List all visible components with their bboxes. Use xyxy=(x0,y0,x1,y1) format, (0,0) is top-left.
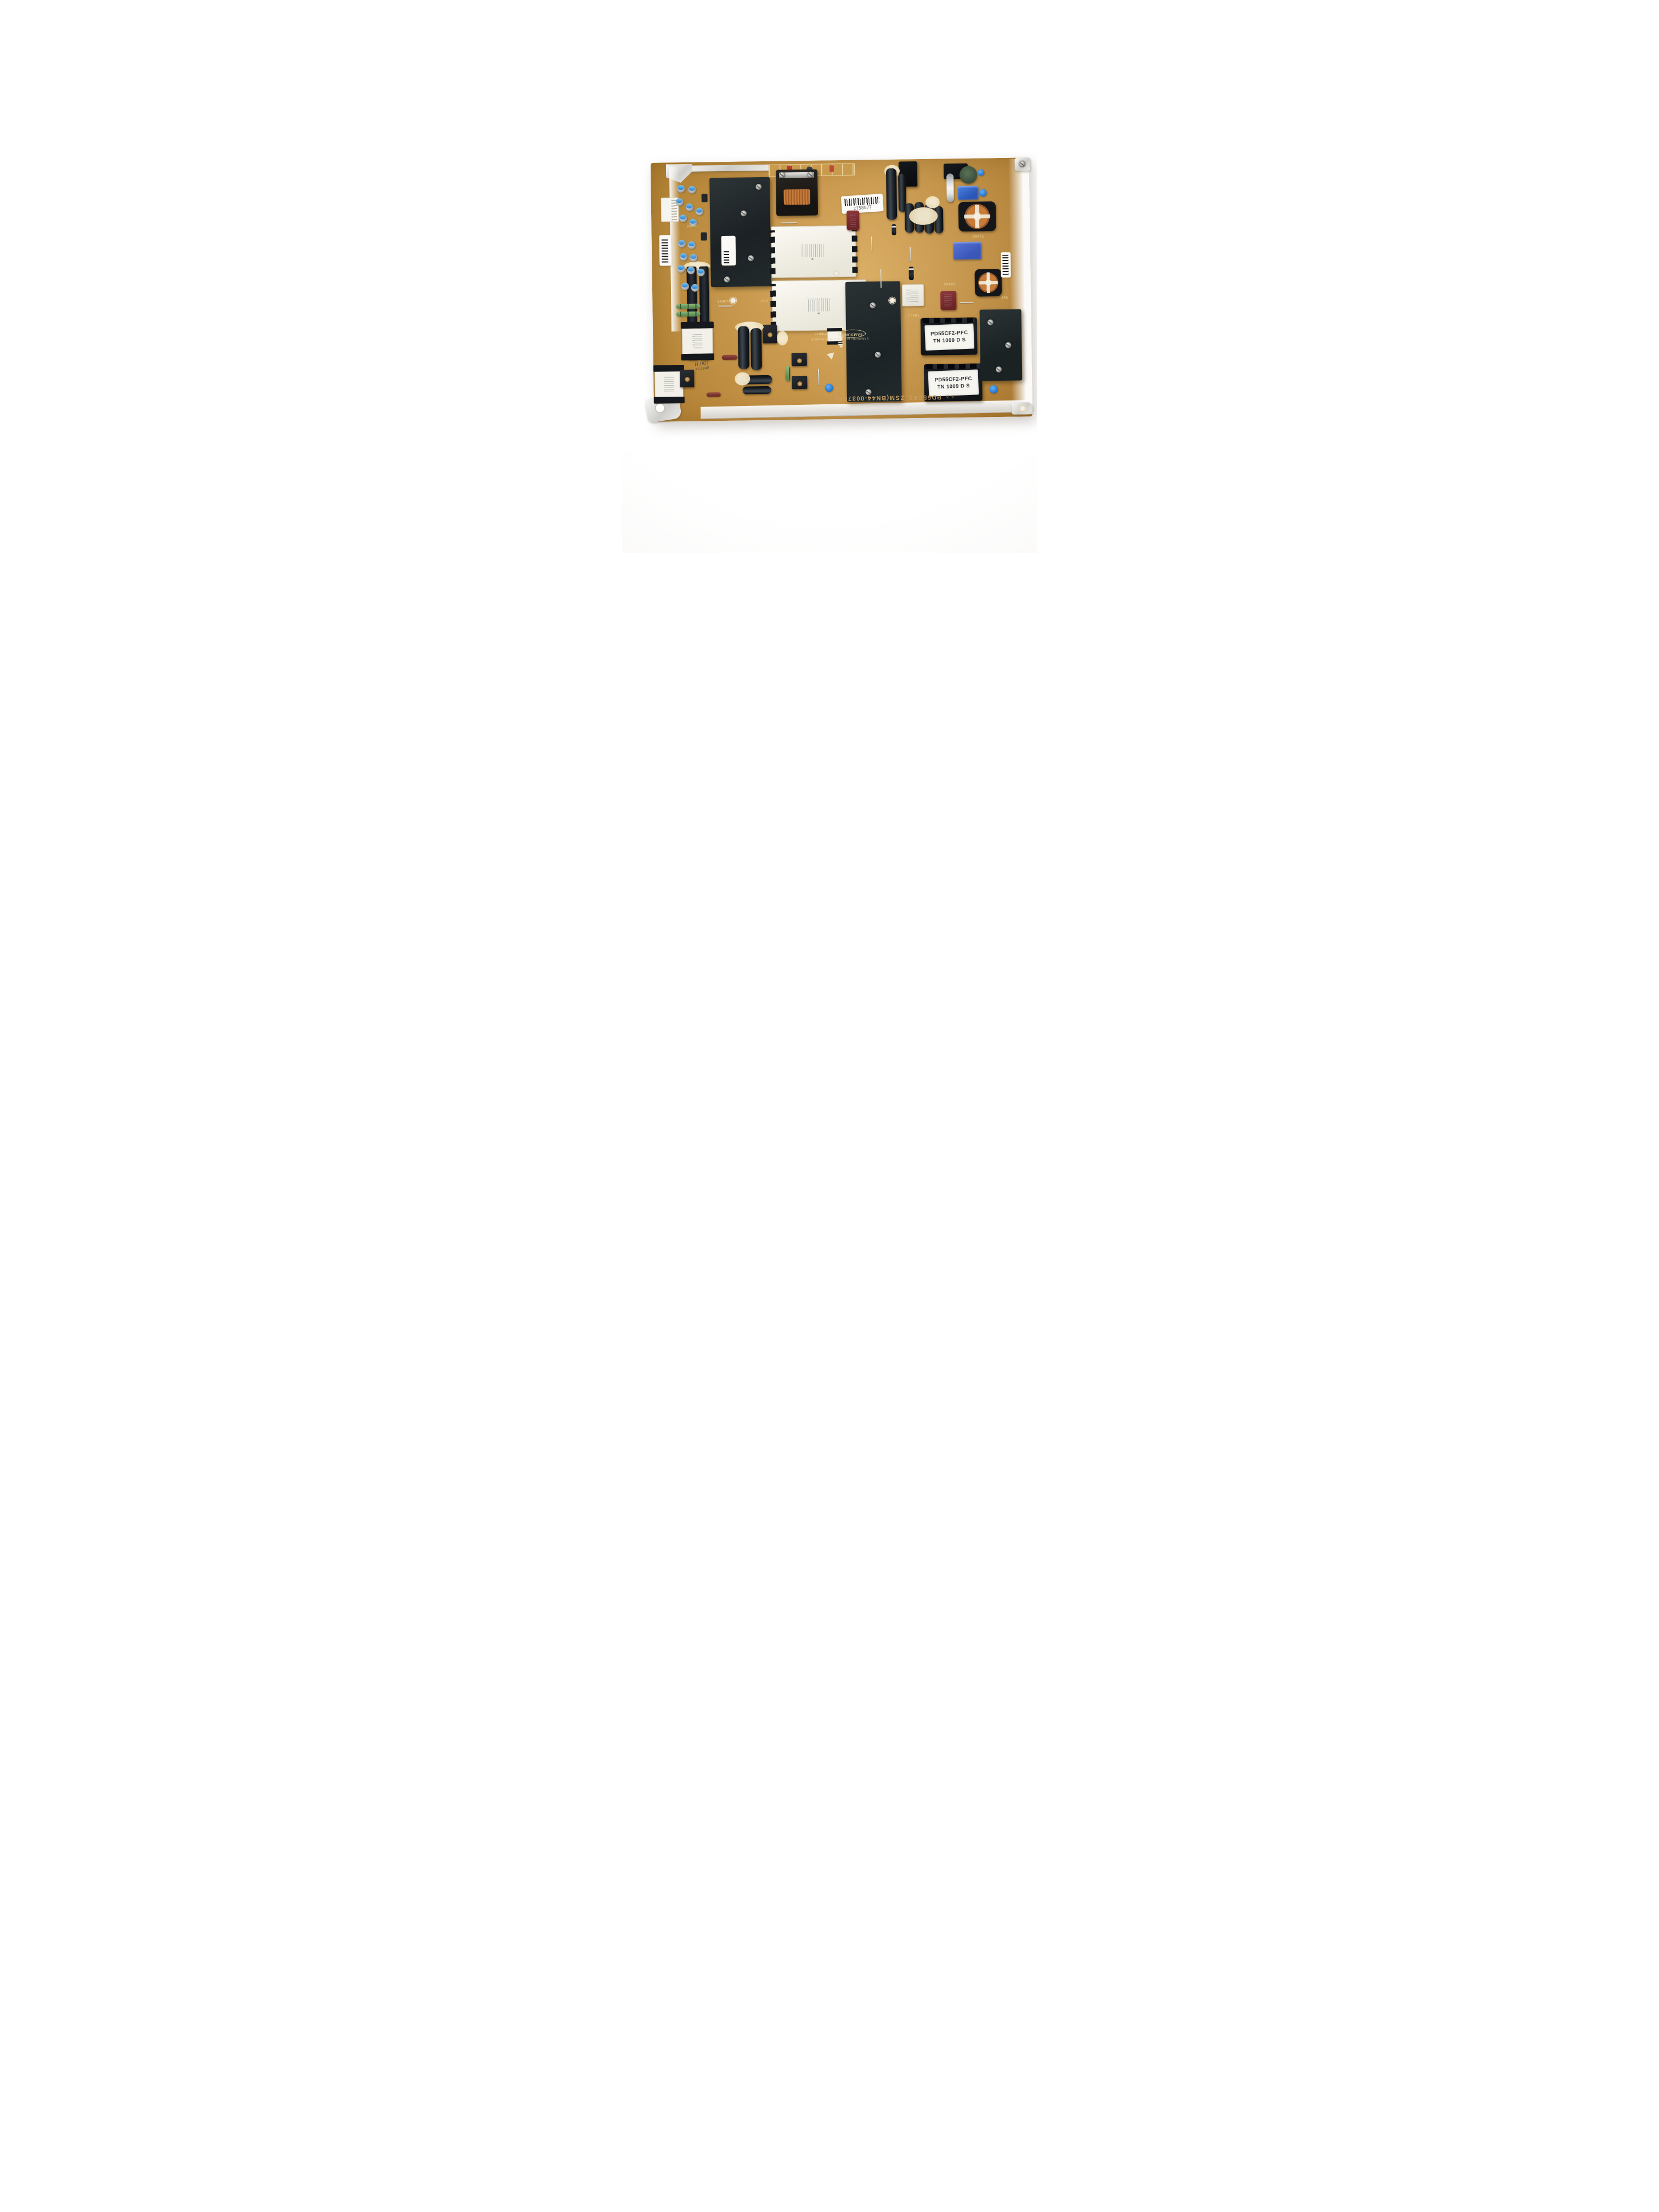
electrolytic-capacitor xyxy=(676,198,684,206)
silkscreen-ref: SP5 xyxy=(1001,296,1008,300)
red-paint-mark xyxy=(830,165,834,172)
resistor-maroon xyxy=(722,355,737,360)
left-heatsink xyxy=(709,177,771,287)
electrolytic-capacitor xyxy=(690,254,697,262)
ic-clip xyxy=(827,328,842,331)
silkscreen-ref: LP801 xyxy=(909,314,920,318)
glue-blob xyxy=(777,331,788,345)
through-hole-pad xyxy=(833,270,839,276)
barcode xyxy=(1002,255,1009,275)
mount-hole-pad xyxy=(1018,404,1027,413)
right-edge-barcode-sticker xyxy=(1001,252,1011,278)
film-capacitor-maroon xyxy=(940,291,956,310)
film-capacitor-white xyxy=(902,284,924,307)
resistor-green xyxy=(676,312,701,317)
small-transformer xyxy=(682,323,713,359)
heatsink-screw xyxy=(741,210,747,216)
pfc-transformer-label: PD55CF2-PFC TN 1009 D S xyxy=(925,323,974,351)
core-clip xyxy=(681,353,714,360)
heatsink-screw xyxy=(988,319,994,325)
jumper-wire xyxy=(781,222,797,223)
silkscreen-ref: CP801 xyxy=(944,283,956,286)
pfc-label-line2: TN 1009 D S xyxy=(933,337,966,343)
cap-stamp xyxy=(944,294,952,306)
film-capacitor-blue xyxy=(957,185,978,200)
diode xyxy=(891,224,896,235)
electrolytic-capacitor xyxy=(677,265,685,273)
retainer-clip xyxy=(963,205,991,228)
electrolytic-capacitor-tall xyxy=(886,168,897,220)
to220-transistor xyxy=(792,353,807,366)
electrolytic-capacitor xyxy=(677,185,685,193)
warning-triangles: ⚠ ⚠ xyxy=(945,394,955,399)
copper-winding xyxy=(783,189,810,205)
heatsink-barcode-label xyxy=(721,236,736,266)
jumper-wire xyxy=(880,269,881,288)
ceramic-disc-capacitor xyxy=(989,385,997,393)
resistor-maroon xyxy=(707,392,721,397)
silkscreen-ref: CM856 xyxy=(686,224,698,228)
bottom-edge-bracket xyxy=(701,400,1030,419)
resistor-green xyxy=(676,304,700,309)
electrolytic-capacitor xyxy=(688,241,696,249)
clamp-screw xyxy=(779,172,785,178)
jumper-wire xyxy=(871,236,872,252)
spec-stamp xyxy=(802,244,823,257)
silkscreen-ref: CM811 xyxy=(973,235,985,239)
white-transformer: ▲ xyxy=(771,225,856,278)
heatsink-screw xyxy=(870,302,876,308)
electrolytic-capacitor xyxy=(691,284,699,292)
film-capacitor-maroon xyxy=(847,211,860,230)
left-edge-barcode-sticker xyxy=(659,235,672,266)
jumper-wire xyxy=(910,247,911,261)
photo-of-pcb: ▲ ▲ 2758877 xyxy=(622,0,1037,553)
toroidal-inductor xyxy=(975,269,1002,297)
electrolytic-capacitor xyxy=(686,204,693,211)
axial-capacitor xyxy=(742,386,771,394)
dip-arrow-icon xyxy=(826,351,834,360)
film-capacitor-blue xyxy=(953,241,981,259)
warning-triangle-icon: ▲ xyxy=(817,312,821,315)
heatsink-screw xyxy=(996,366,1002,373)
ceramic-disc-capacitor xyxy=(978,169,984,176)
pfc-transformer: PD55CF2-PFC TN 1009 D S xyxy=(921,318,978,356)
heatsink-screw xyxy=(1005,342,1011,348)
electrolytic-capacitor xyxy=(678,240,686,247)
electrolytic-capacitor xyxy=(687,267,695,274)
handwritten-mark: H.001 48-1940 xyxy=(695,361,710,372)
pfc-transformer-label: PD55CF2-PFC TN 1009 D S xyxy=(928,369,979,397)
to220-transistor xyxy=(792,376,807,389)
electrolytic-capacitor xyxy=(751,328,762,370)
through-hole-pad xyxy=(729,297,737,304)
heatsink-screw xyxy=(755,184,761,190)
silkscreen-ref: TM8015 xyxy=(814,331,828,335)
heatsink-screw xyxy=(724,276,730,283)
small-transistor xyxy=(702,194,708,202)
jumper-wire xyxy=(818,369,819,386)
lug-hole xyxy=(655,403,665,413)
jumper-wire xyxy=(960,302,973,303)
core-clip xyxy=(654,397,685,404)
pfc-label-line1: PD55CF2-PFC xyxy=(930,330,968,337)
clamp-screw xyxy=(808,172,814,178)
jumper-wire xyxy=(718,306,732,307)
ceramic-disc-capacitor xyxy=(825,383,833,392)
heatsink-screw xyxy=(875,352,881,358)
through-hole-pad xyxy=(888,297,896,304)
main-transformer xyxy=(776,170,818,216)
right-heatsink xyxy=(980,309,1023,381)
warning-triangle-icon: ▲ xyxy=(810,257,814,261)
electrolytic-capacitor xyxy=(738,326,749,369)
spec-stamp xyxy=(664,377,674,391)
small-transistor xyxy=(701,232,707,240)
heatsink-screw xyxy=(748,255,754,261)
to220-transistor xyxy=(763,325,777,343)
electrolytic-capacitor xyxy=(688,186,696,194)
handwritten-sub: 48-1940 xyxy=(695,366,710,372)
top-edge-bracket xyxy=(679,165,770,172)
diode xyxy=(909,267,913,280)
electrolytic-capacitor xyxy=(679,215,687,222)
spec-stamp xyxy=(808,298,830,312)
spec-stamp xyxy=(692,334,702,348)
pfc-label-line1: PD55CF2-PFC xyxy=(935,376,973,382)
resistor-green xyxy=(785,366,790,381)
toroidal-inductor xyxy=(958,201,996,232)
varistor-green-disc xyxy=(960,166,977,184)
to220-transistor xyxy=(680,370,694,387)
electrolytic-capacitor xyxy=(696,208,703,216)
fuse xyxy=(946,173,954,202)
electrolytic-capacitor xyxy=(681,283,689,290)
cap-stamp xyxy=(906,289,918,302)
silkscreen-ref: J891 xyxy=(760,300,769,303)
cap-stamp xyxy=(850,214,856,227)
small-transformer xyxy=(654,366,684,402)
barcode xyxy=(662,238,669,262)
electrolytic-capacitor xyxy=(680,253,687,261)
electrolytic-capacitor xyxy=(697,268,704,276)
silkscreen-ref: GM855 xyxy=(717,299,729,303)
barcode xyxy=(724,250,729,263)
ceramic-disc-capacitor xyxy=(979,189,986,196)
pcb-board: ▲ ▲ 2758877 xyxy=(651,157,1033,422)
pfc-label-line2: TN 1009 D S xyxy=(938,383,970,390)
core-clip xyxy=(681,321,714,329)
